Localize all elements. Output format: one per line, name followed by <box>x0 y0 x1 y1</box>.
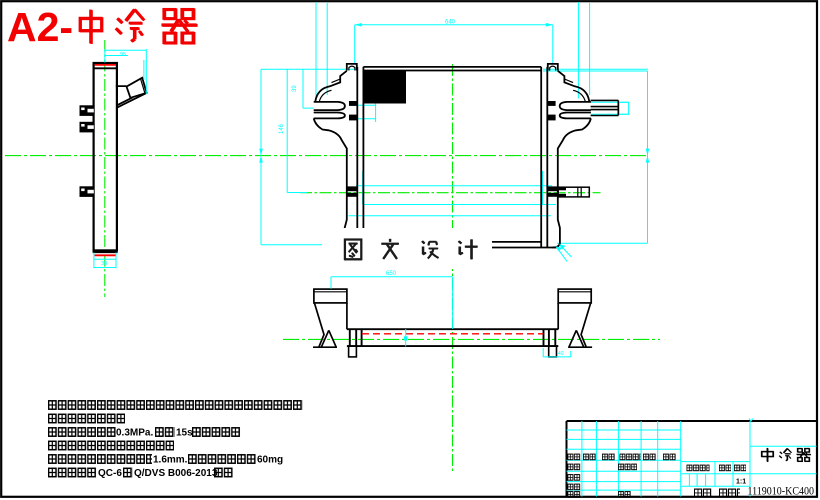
svg-text:38: 38 <box>101 261 107 267</box>
svg-text:640: 640 <box>445 20 456 26</box>
svg-text:QC-6: QC-6 <box>98 468 122 479</box>
svg-text:650: 650 <box>386 271 397 277</box>
svg-text:146: 146 <box>279 123 285 134</box>
svg-text:A2-: A2- <box>7 4 73 50</box>
svg-text:1:1: 1:1 <box>736 479 746 486</box>
svg-text:39: 39 <box>292 85 298 92</box>
svg-text:Q/DVS B006-2013: Q/DVS B006-2013 <box>134 468 218 479</box>
svg-text:0.3MPa.: 0.3MPa. <box>116 428 153 439</box>
svg-text:40: 40 <box>558 351 564 357</box>
svg-text:1.6mm.: 1.6mm. <box>153 455 188 466</box>
svg-text:95: 95 <box>120 52 126 58</box>
svg-text:1119010-KC400: 1119010-KC400 <box>748 484 815 498</box>
svg-text:15s: 15s <box>176 428 193 439</box>
svg-text:60mg: 60mg <box>257 455 283 466</box>
